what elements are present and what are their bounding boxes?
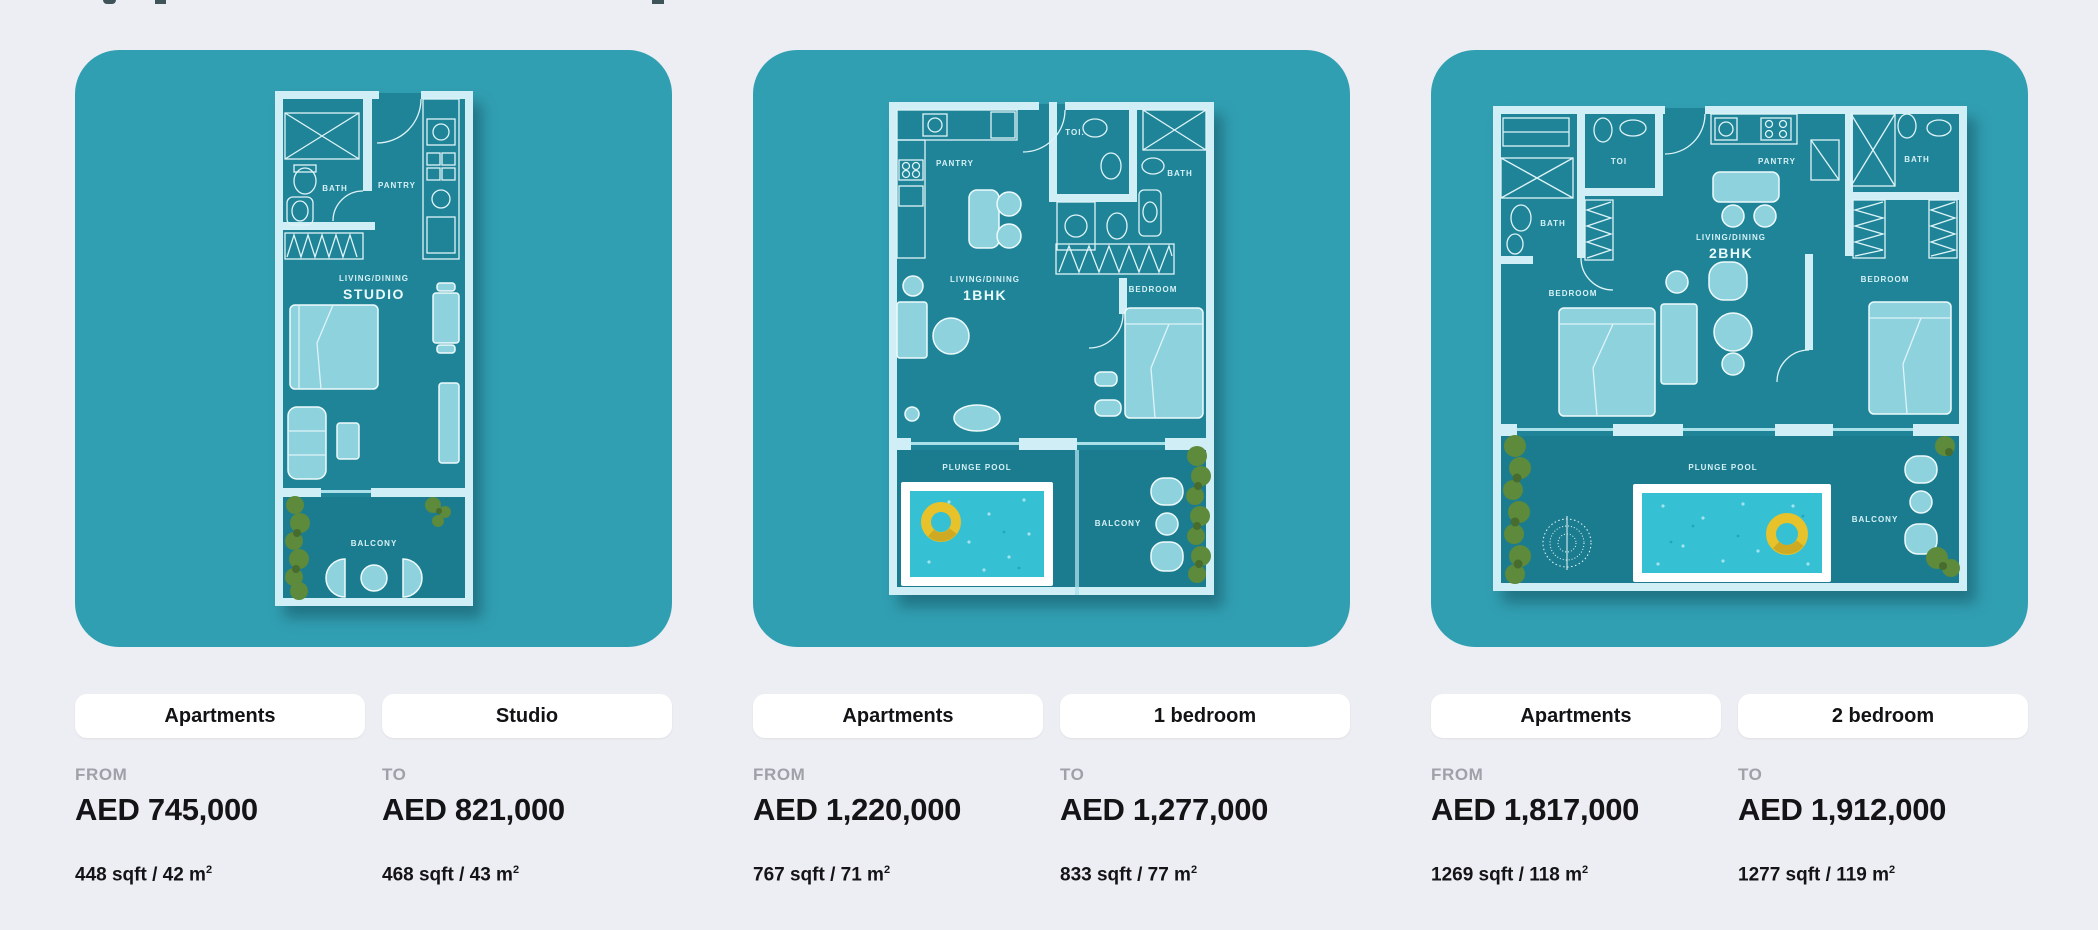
room-label-bath: BATH	[322, 184, 348, 193]
lounge-chair	[933, 318, 969, 354]
dining-chair	[997, 224, 1021, 248]
from-price: AED 745,000	[75, 791, 365, 829]
room-label-bedroom-right: BEDROOM	[1860, 275, 1909, 284]
badges-row: Apartments 1 bedroom	[753, 694, 1350, 738]
balcony-table	[1156, 513, 1178, 535]
floor-plan-2bhk-image: BATH TOI PANTRY BATH LIVING/DINING 2BHK …	[1493, 106, 1967, 591]
room-label-unit: 1BHK	[963, 287, 1007, 303]
price-to-block: TO AED 1,912,000 1277 sqft / 119 m2	[1738, 765, 2028, 886]
floor-plans-section: BATH PANTRY LIVING/DINING STUDIO BALCONY…	[0, 0, 2098, 930]
from-label: FROM	[75, 765, 365, 785]
apartment-card-2bedroom: BATH TOI PANTRY BATH LIVING/DINING 2BHK …	[1431, 50, 2028, 886]
room-label-bath-right: BATH	[1904, 155, 1930, 164]
cropped-heading-fragment	[155, 0, 166, 4]
room-label-pantry: PANTRY	[936, 159, 974, 168]
to-area: 468 sqft / 43 m2	[382, 859, 672, 886]
apartment-card-studio: BATH PANTRY LIVING/DINING STUDIO BALCONY…	[75, 50, 672, 886]
from-label: FROM	[1431, 765, 1721, 785]
dining-chair	[1722, 205, 1744, 227]
price-from-block: FROM AED 1,817,000 1269 sqft / 118 m2	[1431, 765, 1721, 886]
to-label: TO	[1738, 765, 2028, 785]
room-label-unit: 2BHK	[1708, 245, 1752, 261]
unit-type-badge: Studio	[382, 694, 672, 738]
room-label-living: LIVING/DINING	[1696, 233, 1766, 242]
room-label-living: LIVING/DINING	[339, 274, 409, 283]
room-label-pool: PLUNGE POOL	[1688, 463, 1757, 472]
armchair	[1709, 262, 1747, 300]
lounge-chair	[954, 405, 1000, 431]
from-price: AED 1,817,000	[1431, 791, 1721, 829]
tv-unit	[897, 302, 927, 358]
coffee-table	[337, 423, 359, 459]
from-area: 1269 sqft / 118 m2	[1431, 859, 1721, 886]
price-to-block: TO AED 1,277,000 833 sqft / 77 m2	[1060, 765, 1350, 886]
bench	[1095, 400, 1121, 416]
room-label-toi: TOI	[1610, 157, 1626, 166]
room-label-pool: PLUNGE POOL	[942, 463, 1011, 472]
badges-row: Apartments 2 bedroom	[1431, 694, 2028, 738]
from-label: FROM	[753, 765, 1043, 785]
bed	[290, 305, 378, 389]
balcony-table	[361, 565, 387, 591]
floor-plan-studio-image: BATH PANTRY LIVING/DINING STUDIO BALCONY	[275, 91, 473, 606]
stool	[905, 407, 919, 421]
unit-type-badge: 2 bedroom	[1738, 694, 2028, 738]
balcony-chair	[1151, 478, 1183, 505]
room-label-unit: STUDIO	[343, 286, 405, 302]
price-from-block: FROM AED 745,000 448 sqft / 42 m2	[75, 765, 365, 886]
room-label-pantry: PANTRY	[378, 181, 416, 190]
to-area: 1277 sqft / 119 m2	[1738, 859, 2028, 886]
to-price: AED 1,912,000	[1738, 791, 2028, 829]
room-label-toi: TOI.	[1065, 128, 1084, 137]
floor-plan-1bhk-image: PANTRY TOI. BATH LIVING/DINING 1BHK BEDR…	[889, 102, 1214, 595]
plunge-pool	[901, 482, 1053, 586]
room-label-balcony: BALCONY	[350, 539, 397, 548]
apartment-cards-row: BATH PANTRY LIVING/DINING STUDIO BALCONY…	[75, 50, 2028, 886]
floor-plan-panel: BATH TOI PANTRY BATH LIVING/DINING 2BHK …	[1431, 50, 2028, 647]
tv-unit	[1661, 304, 1697, 384]
balcony-chair	[1905, 456, 1937, 483]
desk	[433, 293, 459, 343]
dining-table	[969, 190, 999, 248]
room-label-bedroom-left: BEDROOM	[1548, 289, 1597, 298]
unit-type-badge: 1 bedroom	[1060, 694, 1350, 738]
floor-plan-panel: PANTRY TOI. BATH LIVING/DINING 1BHK BEDR…	[753, 50, 1350, 647]
balcony-chair	[1151, 542, 1183, 571]
room-label-bath: BATH	[1167, 169, 1193, 178]
stool	[1722, 353, 1744, 375]
dining-table	[1713, 172, 1779, 202]
room-label-bedroom: BEDROOM	[1129, 285, 1178, 294]
badges-row: Apartments Studio	[75, 694, 672, 738]
room-label-bath-left: BATH	[1540, 219, 1566, 228]
to-price: AED 1,277,000	[1060, 791, 1350, 829]
to-area: 833 sqft / 77 m2	[1060, 859, 1350, 886]
to-label: TO	[1060, 765, 1350, 785]
price-from-block: FROM AED 1,220,000 767 sqft / 71 m2	[753, 765, 1043, 886]
price-to-block: TO AED 821,000 468 sqft / 43 m2	[382, 765, 672, 886]
bench	[1095, 372, 1117, 386]
balcony-table	[1910, 491, 1932, 513]
cropped-heading-fragment	[103, 0, 116, 4]
lounge-chair	[1714, 313, 1752, 351]
from-area: 448 sqft / 42 m2	[75, 859, 365, 886]
bed	[1869, 302, 1951, 414]
from-price: AED 1,220,000	[753, 791, 1043, 829]
sofa	[288, 407, 326, 479]
tv-unit	[439, 383, 459, 463]
category-badge: Apartments	[1431, 694, 1721, 738]
to-label: TO	[382, 765, 672, 785]
room-label-pantry: PANTRY	[1758, 157, 1796, 166]
from-area: 767 sqft / 71 m2	[753, 859, 1043, 886]
floor-plan-panel: BATH PANTRY LIVING/DINING STUDIO BALCONY	[75, 50, 672, 647]
category-badge: Apartments	[75, 694, 365, 738]
room-label-balcony: BALCONY	[1095, 519, 1142, 528]
category-badge: Apartments	[753, 694, 1043, 738]
dining-chair	[997, 192, 1021, 216]
stool	[903, 276, 923, 296]
cropped-heading-fragment	[652, 0, 664, 4]
room-label-balcony: BALCONY	[1851, 515, 1898, 524]
room-label-living: LIVING/DINING	[950, 275, 1020, 284]
to-price: AED 821,000	[382, 791, 672, 829]
stool	[1666, 271, 1688, 293]
plunge-pool	[1633, 484, 1831, 582]
dining-chair	[1754, 205, 1776, 227]
apartment-card-1bedroom: PANTRY TOI. BATH LIVING/DINING 1BHK BEDR…	[753, 50, 1350, 886]
